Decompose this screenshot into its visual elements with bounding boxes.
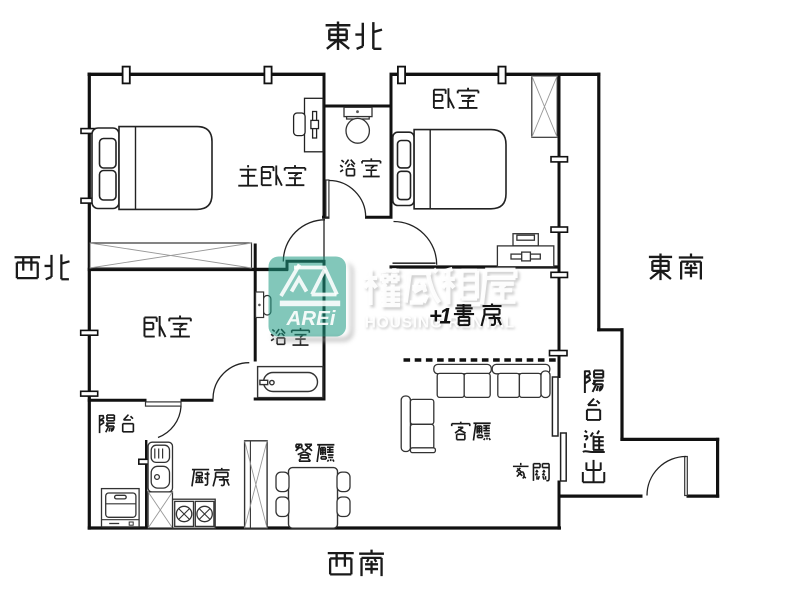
svg-text:AREi: AREi xyxy=(286,307,337,330)
svg-text:+1: +1 xyxy=(429,304,451,329)
